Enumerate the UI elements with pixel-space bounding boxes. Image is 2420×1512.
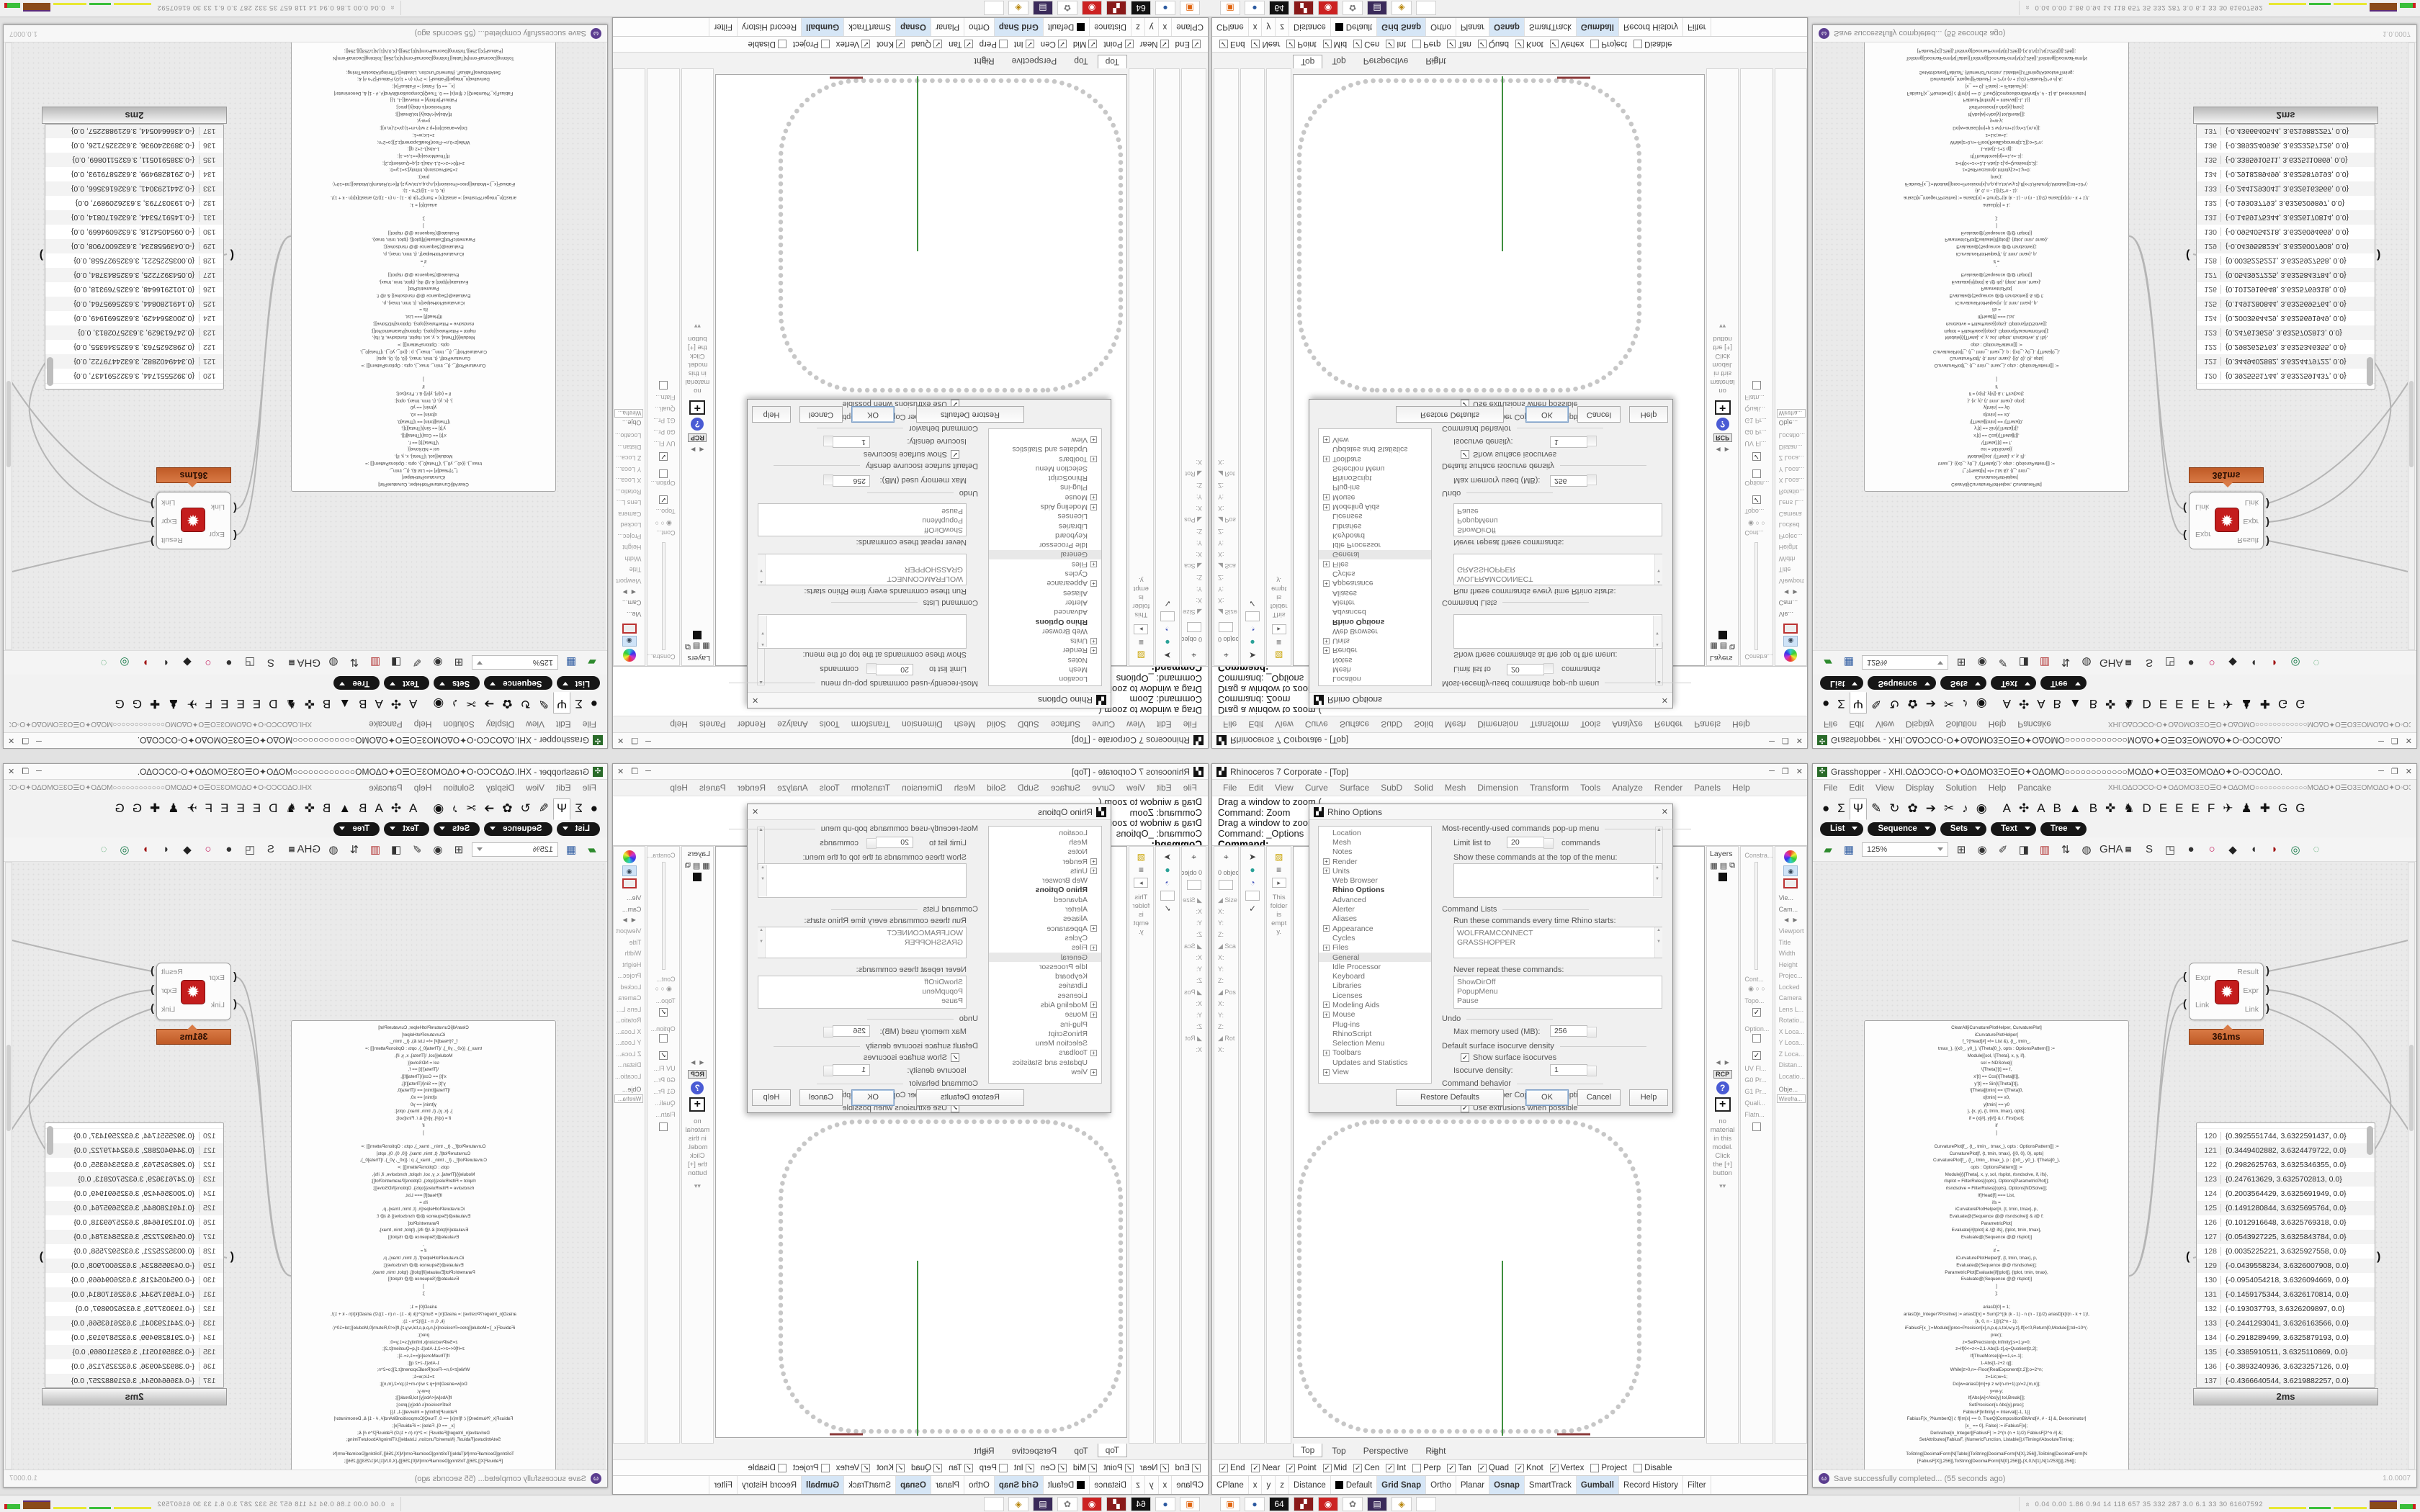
gh-menu-item[interactable]: View [1870, 718, 1899, 731]
list-row[interactable]: 129 {-0.0439558234, 3.6326007908, 0.0} [2197, 1259, 2375, 1273]
osnap-item[interactable]: Project [793, 1464, 830, 1472]
axes-icon[interactable]: ⇅ [2058, 657, 2074, 670]
osnap-checkbox[interactable] [1412, 40, 1421, 49]
category-pill[interactable]: Sets [1940, 677, 1986, 690]
status-cell[interactable]: Osnap [895, 1476, 931, 1494]
list-panel-scrollbar[interactable] [2367, 1126, 2373, 1155]
component-tab-icon[interactable]: B [355, 798, 370, 820]
component-tab-icon[interactable]: E [233, 798, 248, 820]
component-tab-icon[interactable]: ◉ [1973, 798, 1991, 820]
preview-icon[interactable]: ◉ [1974, 843, 1990, 856]
option-checkbox[interactable] [659, 452, 668, 461]
search-icon[interactable]: S [2141, 657, 2157, 669]
expression-component[interactable]: ✹ Expr Link Result Expr Link ( ( ) ) ) [2189, 492, 2264, 549]
component-tab-icon[interactable]: G [2292, 798, 2308, 820]
rhino-menu-item[interactable]: View [1121, 781, 1150, 794]
component-tab-icon[interactable]: Σ [1834, 798, 1849, 820]
rhino-menu-item[interactable]: SubD [1013, 718, 1044, 731]
status-cell[interactable]: SmartTrack [843, 18, 895, 36]
list-row[interactable]: 127 {0.0543927225, 3.6325843784, 0.0} [2197, 268, 2375, 282]
cancel-button[interactable]: Cancel [799, 406, 843, 423]
option-checkbox[interactable] [659, 1051, 668, 1060]
osnap-item[interactable]: Vertex [1550, 1464, 1585, 1472]
osnap-checkbox[interactable] [1353, 1464, 1362, 1472]
restore-defaults-button[interactable]: Restore Defaults [1396, 406, 1504, 423]
component-tab-icon[interactable]: ✜ [301, 692, 318, 714]
options-tree-item[interactable]: Updates and Statistics [989, 445, 1101, 454]
status-cell[interactable]: y [1262, 18, 1276, 36]
never-repeat-command[interactable]: PopupMenu [761, 516, 963, 525]
osnap-item[interactable]: End [1175, 40, 1201, 49]
expression-component[interactable]: ✹ Expr Link Result Expr Link ( ( ) ) ) [2189, 963, 2264, 1020]
osnap-item[interactable]: Perp [980, 40, 1008, 49]
rhino-menu-item[interactable]: File [1218, 781, 1242, 794]
osnap-item[interactable]: Int [1014, 40, 1034, 49]
options-tree-item[interactable]: View [1319, 1067, 1431, 1076]
gha-icon[interactable]: GHA [305, 657, 321, 669]
folder-panel[interactable]: ▨ ≡ ▸ This folder is empty. [1129, 846, 1154, 1444]
component-tab-icon[interactable] [421, 813, 429, 820]
rhino-menu-item[interactable]: Curve [1087, 781, 1120, 794]
close-button[interactable]: ✕ [617, 736, 624, 745]
osnap-checkbox[interactable] [1447, 40, 1456, 49]
hamburger-icon[interactable]: ≡ [1131, 637, 1152, 647]
viewport-tab[interactable]: Top [1098, 55, 1127, 68]
minimize-button[interactable]: ─ [1769, 736, 1775, 745]
never-repeat-command[interactable]: ShowDirOff [761, 525, 963, 534]
options-tree-item[interactable]: Web Browser [989, 876, 1101, 885]
preview-icon[interactable]: ◉ [430, 657, 446, 670]
rhino-menu-item[interactable]: Surface [1046, 781, 1085, 794]
open-file-icon[interactable]: ▰ [584, 657, 600, 670]
list-row[interactable]: 136 {-0.3893240936, 3.6323257126, 0.0} [45, 1359, 223, 1374]
options-tree-item[interactable]: Rhino Options [989, 886, 1101, 895]
gh-canvas[interactable]: ClearAll[iCurvaturePlotHelper, Curvature… [12, 42, 606, 650]
rhino-menu-item[interactable]: Tools [815, 781, 845, 794]
osnap-checkbox[interactable] [1026, 1464, 1034, 1472]
zoom-extents-icon[interactable]: ⊞ [451, 843, 467, 856]
options-tree-item[interactable]: General [989, 953, 1101, 962]
category-pill[interactable]: List [557, 677, 600, 690]
dialog-close-button[interactable]: ✕ [1662, 696, 1668, 705]
viewport-properties-panel[interactable]: ◉ Vie... Cam... ◀▶ ViewportTitleWidthHei… [1775, 846, 1807, 1444]
component-tab-icon[interactable]: E [2188, 798, 2203, 820]
options-tree-item[interactable]: Updates and Statistics [989, 1058, 1101, 1067]
component-tab-icon[interactable]: ✂ [1940, 692, 1958, 714]
help-icon[interactable]: ? [1716, 1081, 1729, 1094]
panel-nav-arrows[interactable]: ◀▶ [684, 446, 712, 453]
rhino-menu-item[interactable]: Analyze [772, 718, 813, 731]
component-tab-icon[interactable]: E [249, 692, 264, 714]
tree-expand-icon[interactable] [1090, 494, 1097, 500]
options-tree-item[interactable]: Modeling Aids [989, 1000, 1101, 1009]
osnap-checkbox[interactable] [778, 1464, 786, 1472]
options-tree-item[interactable]: Updates and Statistics [1319, 1058, 1431, 1067]
search-icon[interactable]: S [2141, 843, 2157, 855]
package-icon[interactable]: ◳ [2162, 843, 2178, 856]
component-tab-icon[interactable]: ✂ [1940, 798, 1958, 820]
list-row[interactable]: 134 {-0.2918289499, 3.6325879193, 0.0} [2197, 167, 2375, 181]
radio-group[interactable]: ◉ ○ ○ [649, 984, 677, 994]
point-cloud-curve[interactable] [1299, 1122, 1639, 1431]
gh-menu-item[interactable]: Edit [1844, 781, 1869, 794]
options-tree-item[interactable]: Files [989, 559, 1101, 569]
ok-button[interactable]: OK [851, 1089, 895, 1106]
isocurve-density-spinner[interactable]: 1 [1550, 436, 1587, 448]
component-tab-icon[interactable]: ✿ [1904, 798, 1922, 820]
package-icon[interactable]: ◳ [242, 657, 258, 670]
top-commands-listbox[interactable]: ▲▼ [758, 614, 967, 649]
help-icon[interactable]: ? [691, 1081, 704, 1094]
chevrons-icon[interactable]: ▾▾ [684, 1181, 712, 1191]
gh-canvas[interactable]: ClearAll[iCurvaturePlotHelper, Curvature… [1814, 42, 2408, 650]
list-row[interactable]: 130 {-0.0954054218, 3.6326094669, 0.0} [2197, 225, 2375, 239]
options-tree-item[interactable]: Advanced [1319, 608, 1431, 617]
component-tab-icon[interactable]: ✎ [535, 692, 552, 714]
input-port-link[interactable]: Link [211, 1001, 225, 1009]
rhino-menu-item[interactable]: Panels [694, 718, 731, 731]
canvas-scrollbar[interactable] [5, 862, 12, 1470]
viewport-tab[interactable]: Top [1098, 1444, 1127, 1457]
options-tree-item[interactable]: Mouse [1319, 492, 1431, 502]
list-row[interactable]: 124 {0.2003564429, 3.6325691949, 0.0} [45, 1187, 223, 1201]
rhino-menu-item[interactable]: Dimension [1472, 718, 1523, 731]
status-cell[interactable]: Distance [1089, 1476, 1131, 1494]
osnap-item[interactable]: Cen [1041, 40, 1067, 49]
gh-menu-item[interactable]: View [521, 718, 550, 731]
component-tab-icon[interactable]: ✎ [535, 798, 552, 820]
options-tree-item[interactable]: Toolbars [1319, 1048, 1431, 1058]
isocurve-density-spinner[interactable]: 1 [833, 1064, 870, 1076]
component-tab-icon[interactable]: ▲ [335, 692, 354, 714]
tree-expand-icon[interactable] [1090, 945, 1097, 951]
component-tab-icon[interactable]: ♞ [2120, 798, 2138, 820]
output-port-link[interactable]: Link [2245, 1005, 2259, 1014]
osnap-item[interactable]: Knot [1515, 40, 1543, 49]
component-tab-icon[interactable]: F [202, 692, 216, 714]
options-tree-item[interactable]: Mouse [989, 1010, 1101, 1020]
list-row[interactable]: 127 {0.0543927225, 3.6325843784, 0.0} [45, 268, 223, 282]
rhino-menu-item[interactable]: Curve [1300, 718, 1333, 731]
component-tab-icon[interactable] [1991, 813, 1999, 820]
maximize-button[interactable]: ❐ [22, 767, 29, 776]
osnap-item[interactable]: Cen [1353, 1464, 1379, 1472]
tree-expand-icon[interactable] [1323, 580, 1330, 587]
expression-component[interactable]: ✹ Expr Link Result Expr Link ( ( ) ) ) [156, 492, 231, 549]
options-tree-item[interactable]: Location [1319, 828, 1431, 837]
tree-expand-icon[interactable] [1323, 561, 1330, 567]
tree-expand-icon[interactable] [1323, 494, 1330, 500]
list-row[interactable]: 129 {-0.0439558234, 3.6326007908, 0.0} [45, 239, 223, 253]
preview-icon[interactable]: ◉ [430, 843, 446, 856]
options-tree-item[interactable]: Alerter [1319, 598, 1431, 607]
osnap-checkbox[interactable] [821, 1464, 830, 1472]
globe-icon[interactable]: ◍ [2079, 843, 2094, 856]
osnap-item[interactable]: End [1219, 40, 1245, 49]
osnap-checkbox[interactable] [821, 40, 830, 49]
green-gem2-icon[interactable]: ◗ [138, 843, 153, 855]
osnap-item[interactable]: Vertex [836, 40, 871, 49]
taskbar-app-icon[interactable]: ✿ [1343, 1, 1363, 15]
add-material-button[interactable]: + [689, 1097, 705, 1112]
rhino-menu-item[interactable]: Mesh [949, 781, 980, 794]
rhino-menu-item[interactable]: Edit [1152, 718, 1177, 731]
taskbar-app-icon[interactable]: ▣ [1180, 1, 1200, 15]
osnap-item[interactable]: Near [1140, 40, 1169, 49]
expand-button[interactable]: ▸ [1272, 878, 1286, 888]
input-port-link[interactable]: Link [2195, 503, 2209, 511]
status-cell[interactable]: y [1144, 1476, 1158, 1494]
list-row[interactable]: 121 {0.3449402882, 3.6324479722, 0.0} [2197, 1143, 2375, 1158]
white-sphere-icon[interactable]: ○ [200, 657, 216, 669]
display-input[interactable] [1245, 611, 1260, 621]
selection-circle-icon[interactable]: ◌ [2308, 843, 2324, 855]
gh-menu-item[interactable]: Display [1901, 718, 1939, 731]
component-tab-icon[interactable]: Σ [1834, 692, 1849, 714]
category-pill[interactable]: List [557, 822, 600, 836]
list-row[interactable]: 123 {0.247613629, 3.6325702813, 0.0} [2197, 325, 2375, 340]
maximize-button[interactable]: ❐ [1782, 736, 1789, 745]
list-row[interactable]: 137 {-0.4366640544, 3.6219882257, 0.0} [45, 124, 223, 138]
component-tab-icon[interactable] [421, 692, 429, 699]
status-cell[interactable]: Gumball [1577, 1476, 1619, 1494]
flatness-checkbox[interactable] [1752, 1122, 1761, 1131]
layers-toolbar-icon[interactable]: ▦ [702, 642, 709, 651]
list-row[interactable]: 125 {0.1491280844, 3.6325695764, 0.0} [2197, 297, 2375, 311]
options-tree-item[interactable]: View [989, 435, 1101, 444]
rhino-menu-item[interactable]: File [1178, 718, 1202, 731]
folder-panel[interactable]: ▨ ≡ ▸ This folder is empty. [1266, 68, 1291, 666]
component-tab-icon[interactable]: ✚ [2257, 692, 2274, 714]
options-tree-item[interactable]: Location [989, 828, 1101, 837]
options-tree-item[interactable]: Rhino Options [1319, 886, 1431, 895]
component-tab-icon[interactable]: E [2156, 692, 2171, 714]
osnap-item[interactable]: End [1175, 1464, 1201, 1472]
density-slider[interactable] [662, 542, 665, 650]
component-tab-icon[interactable]: A [2033, 692, 2048, 714]
speaker-icon[interactable]: ▥ [2037, 657, 2053, 670]
list-row[interactable]: 120 {0.3925551744, 3.6322591437, 0.0} [2197, 369, 2375, 383]
component-tab-icon[interactable]: G [112, 798, 128, 820]
rhino-menu-item[interactable]: Help [665, 718, 693, 731]
black-sphere-icon[interactable]: ● [2183, 657, 2199, 669]
gh-menu-item[interactable]: Edit [551, 781, 576, 794]
expand-button[interactable]: ▸ [1134, 878, 1148, 888]
list-output-panel[interactable]: 120 {0.3925551744, 3.6322591437, 0.0} 12… [45, 124, 224, 390]
osnap-checkbox[interactable] [1160, 40, 1169, 49]
osnap-checkbox[interactable] [1633, 40, 1642, 49]
osnap-checkbox[interactable] [896, 1464, 905, 1472]
list-row[interactable]: 122 {0.2982625763, 3.6325346355, 0.0} [45, 340, 223, 354]
tree-expand-icon[interactable] [1323, 1050, 1330, 1056]
layers-toolbar-icon[interactable]: ⧉ [685, 861, 691, 870]
list-row[interactable]: 122 {0.2982625763, 3.6325346355, 0.0} [45, 1158, 223, 1172]
layers-panel[interactable]: Layers ▦▤⧉ ◀▶ RCP ? + no material in thi… [1706, 846, 1739, 1444]
document-icon[interactable]: ▤ [284, 659, 300, 667]
options-tree-item[interactable]: Selection Menu [989, 464, 1101, 473]
box-display-icon[interactable]: ◨ [2016, 657, 2032, 670]
viewport-tab[interactable]: Top [1324, 54, 1353, 68]
component-tab-icon[interactable]: Ψ [553, 692, 570, 714]
options-tree-item[interactable]: Aliases [1319, 588, 1431, 598]
close-button[interactable]: ✕ [8, 736, 14, 745]
component-tab-icon[interactable]: B [355, 692, 370, 714]
component-tab-icon[interactable]: Ψ [553, 798, 570, 820]
boxedit-panel[interactable]: ⌖ 0 objects ◢ SizeX:Y:Z:◢ ScaX:Y:Z:◢ Pos… [1214, 68, 1239, 666]
display-mode-icon[interactable] [622, 878, 637, 888]
gh-menu-item[interactable]: Display [481, 718, 519, 731]
open-file-icon[interactable]: ▰ [584, 843, 600, 856]
status-cell[interactable]: Planar [931, 1476, 964, 1494]
list-panel-scrollbar[interactable] [47, 1126, 53, 1155]
listbox-scrollbar[interactable]: ▲▼ [759, 865, 767, 896]
isocurve-density-spinner[interactable]: 1 [833, 436, 870, 448]
top-commands-listbox[interactable]: ▲▼ [758, 863, 967, 898]
options-tree-item[interactable]: Licenses [989, 512, 1101, 521]
viewport-tab[interactable]: Perspective [1004, 54, 1065, 68]
layer-color-swatch[interactable] [693, 873, 702, 881]
osnap-item[interactable]: Near [1251, 40, 1280, 49]
rhino-menu-item[interactable]: Panels [694, 781, 731, 794]
list-row[interactable]: 125 {0.1491280844, 3.6325695764, 0.0} [45, 1201, 223, 1215]
color-wheel-icon[interactable] [1784, 850, 1797, 863]
save-file-icon[interactable]: ▦ [1841, 843, 1857, 856]
status-cell[interactable]: Distance [1289, 1476, 1331, 1494]
zoom-extents-icon[interactable]: ⊞ [1953, 843, 1969, 856]
rhino-menu-item[interactable]: Panels [1689, 781, 1726, 794]
component-tab-icon[interactable]: G [2275, 692, 2291, 714]
open-file-icon[interactable]: ▰ [1820, 657, 1836, 670]
display-input[interactable] [1160, 891, 1175, 901]
category-pill[interactable]: Sequence [1868, 822, 1935, 836]
list-row[interactable]: 127 {0.0543927225, 3.6325843784, 0.0} [2197, 1230, 2375, 1244]
taskbar-app-icon[interactable]: ▞ [1106, 1, 1126, 15]
options-tree-item[interactable]: General [1319, 550, 1431, 559]
rhino-menu-item[interactable]: Curve [1300, 781, 1333, 794]
gha-icon[interactable]: GHA [2099, 657, 2115, 669]
input-port-expr[interactable]: Expr [2195, 973, 2211, 982]
selection-circle-icon[interactable]: ◌ [96, 657, 112, 669]
gh-titlebar[interactable]: ✣ Grasshopper - ΧΗΙ.ΟΔΟϽCΟ◦Ο✦ΟΔΟΜΟ3ΞΟ☰Ο✦… [4, 732, 607, 748]
max-memory-spinner[interactable]: 256 [1550, 1025, 1587, 1037]
display-panel[interactable]: ➤ ● ◔ ✓ [1240, 68, 1265, 666]
options-tree-item[interactable]: Mouse [1319, 1010, 1431, 1020]
help-icon[interactable]: ? [691, 418, 704, 431]
osnap-checkbox[interactable] [1026, 40, 1034, 49]
cancel-button[interactable]: Cancel [799, 1089, 843, 1106]
component-tab-icon[interactable]: ♞ [2120, 692, 2138, 714]
never-repeat-command[interactable]: Pause [761, 996, 963, 1006]
osnap-item[interactable]: Mid [1323, 40, 1348, 49]
osnap-checkbox[interactable] [1088, 1464, 1097, 1472]
list-row[interactable]: 121 {0.3449402882, 3.6324479722, 0.0} [2197, 354, 2375, 369]
osnap-item[interactable]: Int [1014, 1464, 1034, 1472]
options-tree-item[interactable]: Web Browser [989, 626, 1101, 636]
viewport-tab[interactable]: Perspective [1004, 1444, 1065, 1458]
paint-icon[interactable]: ✐ [409, 657, 425, 670]
gh-canvas[interactable]: ClearAll[iCurvaturePlotHelper, Curvature… [12, 862, 606, 1470]
rhino-menu-item[interactable]: Transform [846, 718, 895, 731]
osnap-checkbox[interactable] [964, 40, 973, 49]
status-cell[interactable]: x [1158, 1476, 1172, 1494]
display-mode-select[interactable]: Wirefra... [1777, 409, 1806, 418]
rhino-menu-item[interactable]: SubD [1376, 718, 1407, 731]
tree-expand-icon[interactable] [1090, 925, 1097, 932]
green-gem-icon[interactable]: ◖ [158, 843, 174, 855]
component-tab-icon[interactable]: F [2204, 692, 2218, 714]
rhino-menu-item[interactable]: Surface [1335, 781, 1374, 794]
rhino-menu-item[interactable]: Tools [1575, 718, 1605, 731]
boxedit-input[interactable] [1187, 880, 1201, 890]
component-tab-icon[interactable]: ✣ [2015, 692, 2033, 714]
taskbar-app-icon[interactable]: 64 [1269, 1, 1289, 15]
osnap-checkbox[interactable] [1286, 1464, 1295, 1472]
list-row[interactable]: 131 {-0.1459175344, 3.6326170814, 0.0} [2197, 1287, 2375, 1302]
tree-expand-icon[interactable] [1323, 868, 1330, 874]
taskbar-app-icon[interactable]: ▞ [1106, 1497, 1126, 1511]
list-row[interactable]: 137 {-0.4366640544, 3.6219882257, 0.0} [2197, 1374, 2375, 1388]
show-isocurves-checkbox[interactable] [951, 450, 959, 459]
osnap-checkbox[interactable] [1386, 1464, 1394, 1472]
list-row[interactable]: 122 {0.2982625763, 3.6325346355, 0.0} [2197, 1158, 2375, 1172]
list-row[interactable]: 128 {0.0035225221, 3.6325927558, 0.0} [2197, 1244, 2375, 1259]
rcp-tab[interactable]: RCP [688, 1070, 707, 1079]
viewport-properties-panel[interactable]: ◉ Vie... Cam... ◀▶ ViewportTitleWidthHei… [613, 846, 645, 1444]
rhino-menu-item[interactable]: Mesh [949, 718, 980, 731]
viewport-tab[interactable]: Perspective [1355, 1444, 1417, 1458]
green-gem-icon[interactable]: ◖ [2246, 843, 2262, 855]
panel-nav-arrows[interactable]: ◀▶ [684, 1059, 712, 1066]
display-mode-select[interactable]: Wirefra... [614, 409, 643, 418]
tree-expand-icon[interactable] [1090, 1012, 1097, 1018]
tree-expand-icon[interactable] [1090, 858, 1097, 865]
status-cell[interactable]: SmartTrack [843, 1476, 895, 1494]
component-tab-icon[interactable]: F [202, 798, 216, 820]
options-tree-item[interactable]: Libraries [989, 981, 1101, 991]
option-checkbox[interactable] [1752, 1051, 1761, 1060]
display-mode-icon[interactable] [622, 624, 637, 634]
options-tree-item[interactable]: Libraries [1319, 981, 1431, 991]
rhino-menu-item[interactable]: Help [1727, 781, 1755, 794]
status-cell[interactable]: Osnap [1489, 18, 1525, 36]
gh-menu-item[interactable]: Edit [1844, 718, 1869, 731]
options-tree-item[interactable]: Render [989, 646, 1101, 655]
chevrons-icon[interactable]: ▾▾ [1708, 1181, 1736, 1191]
component-tab-icon[interactable]: ✂ [462, 798, 480, 820]
category-pill[interactable]: Sequence [484, 822, 552, 836]
component-tab-icon[interactable]: A [371, 692, 386, 714]
topology-checkbox[interactable] [659, 495, 668, 504]
code-panel[interactable]: ClearAll[iCurvaturePlotHelper, Curvature… [291, 1020, 556, 1470]
rhino-menu-item[interactable]: Dimension [897, 718, 948, 731]
component-tab-icon[interactable]: F [2204, 798, 2218, 820]
options-tree-item[interactable]: Mouse [989, 492, 1101, 502]
options-tree-item[interactable]: Idle Processor [1319, 962, 1431, 971]
zoom-extents-icon[interactable]: ⊞ [1953, 657, 1969, 670]
component-tab-icon[interactable]: B [2050, 798, 2065, 820]
taskbar-app-icon[interactable]: ● [1155, 1497, 1175, 1511]
options-tree-item[interactable]: Units [989, 866, 1101, 876]
tree-expand-icon[interactable] [1090, 647, 1097, 654]
never-repeat-command[interactable]: PopupMenu [1457, 987, 1659, 996]
taskbar-app-icon[interactable]: ◉ [1318, 1, 1338, 15]
close-button[interactable]: ✕ [617, 767, 624, 776]
new-viewport-button[interactable]: ✛ [1428, 54, 1441, 67]
orange-sphere-icon[interactable]: ◎ [2287, 843, 2303, 856]
category-pill[interactable]: List [1820, 822, 1863, 836]
help-button[interactable]: Help [1629, 1089, 1668, 1106]
category-pill[interactable]: Tree [333, 677, 380, 690]
